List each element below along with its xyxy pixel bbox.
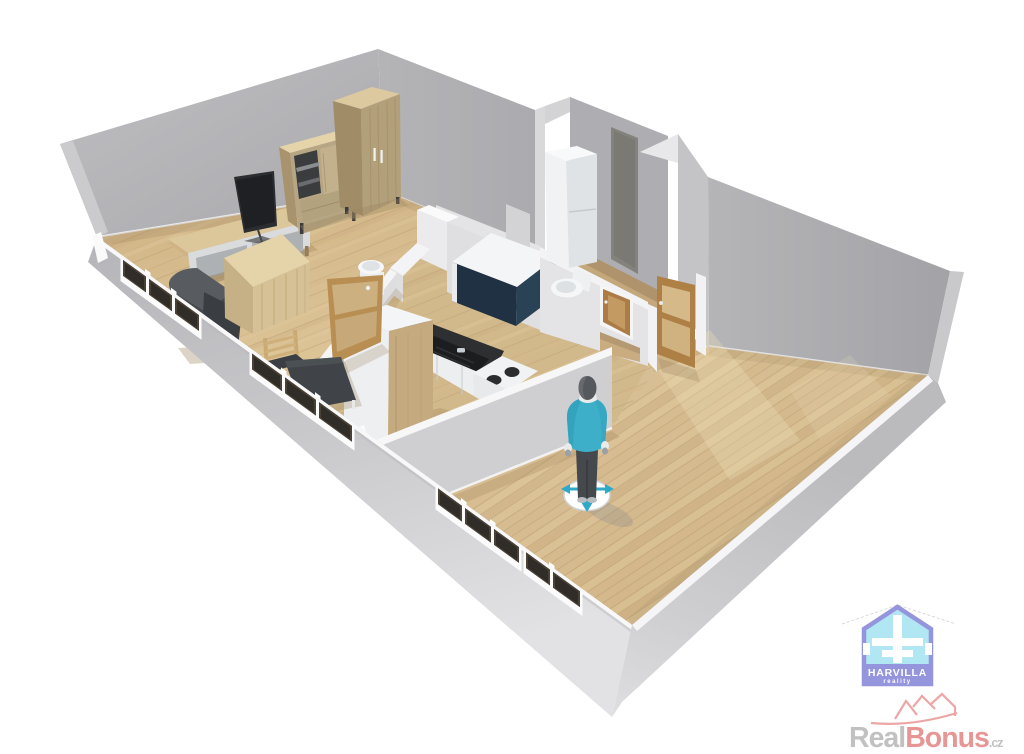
- svg-text:reality: reality: [883, 679, 911, 685]
- svg-text:RealBonus.cz: RealBonus.cz: [849, 722, 1003, 754]
- svg-text:HARVILLA: HARVILLA: [868, 667, 927, 679]
